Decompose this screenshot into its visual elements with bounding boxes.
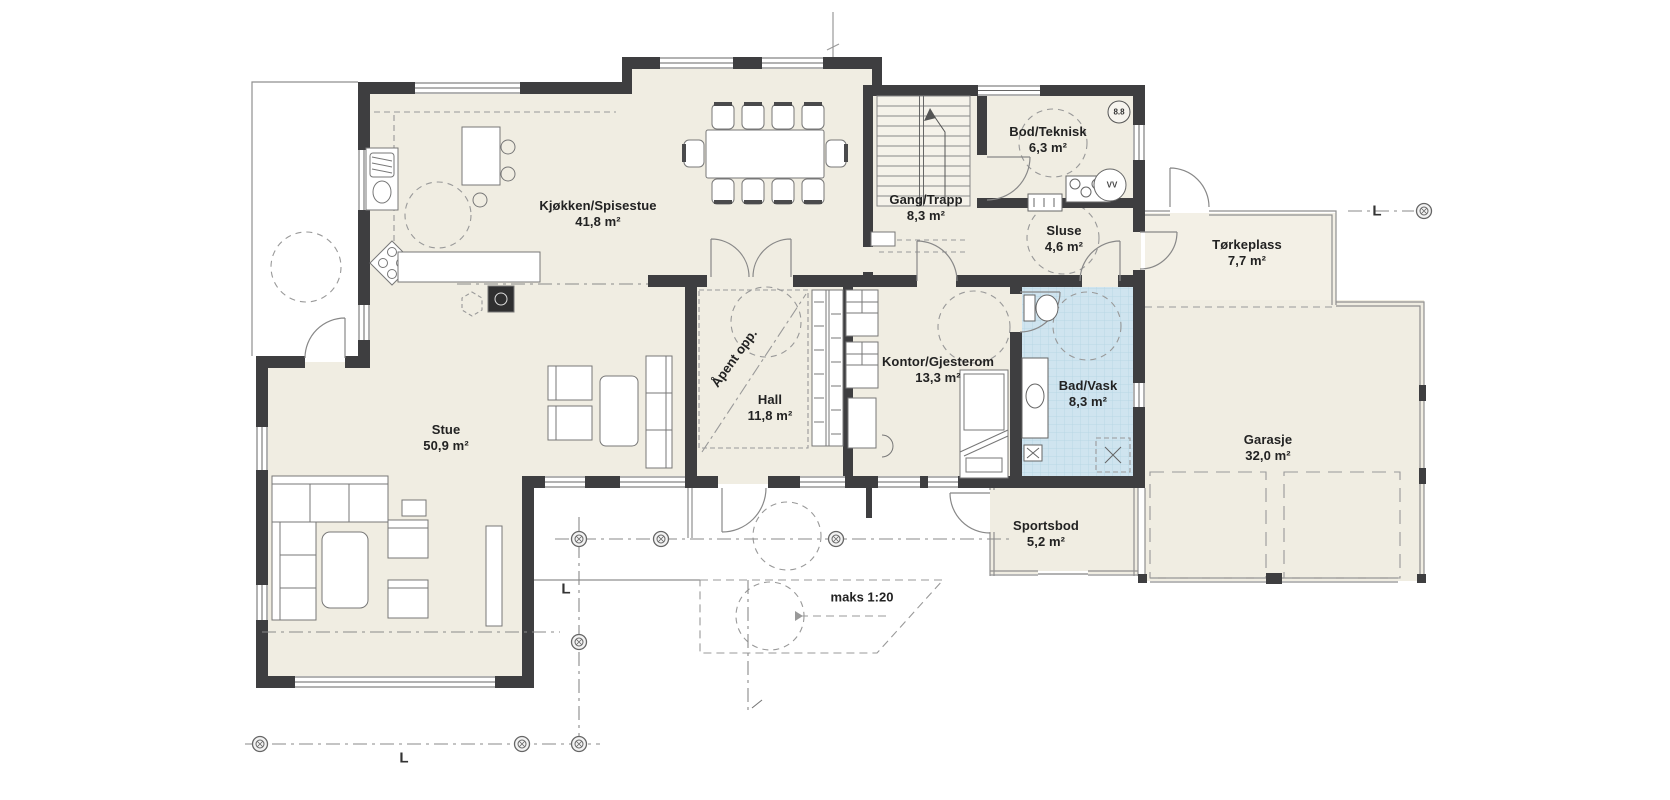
room-label-kontor: Kontor/Gjesterom13,3 m²: [882, 354, 994, 386]
sluse-cabinet: [1028, 194, 1062, 211]
section-letter-mid: L: [561, 581, 570, 598]
armchair: [388, 580, 428, 618]
toilet-bowl: [1036, 295, 1058, 321]
room-label-kjokken: Kjøkken/Spisestue41,8 m²: [539, 198, 656, 230]
desk: [848, 398, 876, 448]
floor-plan-page: Kjøkken/Spisestue41,8 m² Gang/Trapp8,3 m…: [0, 0, 1670, 800]
staircase: [877, 96, 970, 206]
coffee-table: [322, 532, 368, 608]
ramp-outline: [700, 580, 943, 653]
kitchen-counter: [398, 252, 540, 282]
wash-basin: [1026, 384, 1044, 408]
wood-stove: [488, 286, 514, 312]
water-heater-label: VV: [1107, 181, 1118, 190]
sportsbod-door: [950, 493, 990, 533]
kitchen-island: [462, 127, 500, 185]
terrace-door: [305, 318, 345, 358]
room-label-stue: Stue50,9 m²: [423, 422, 469, 454]
room-label-garasje: Garasje32,0 m²: [1244, 432, 1292, 464]
room-label-sluse: Sluse4,6 m²: [1045, 223, 1083, 255]
section-letter-bottom: L: [399, 750, 408, 767]
ramp-slope-label: maks 1:20: [831, 590, 894, 605]
side-table: [402, 500, 426, 516]
section-letter-right: L: [1372, 203, 1381, 220]
dining-table: [706, 130, 824, 178]
bed: [960, 370, 1008, 478]
torkeplass-door: [1170, 168, 1209, 207]
room-label-hall: Hall11,8 m²: [748, 392, 793, 424]
hall-wardrobe: [812, 290, 843, 446]
room-label-bod: Bod/Teknisk6,3 m²: [1009, 124, 1086, 156]
room-label-torkeplass: Tørkeplass7,7 m²: [1212, 237, 1282, 269]
floor-plan-drawing: [0, 0, 1670, 800]
armchair: [548, 366, 592, 400]
main-entrance-door: [722, 488, 766, 532]
tv-bench: [486, 526, 502, 626]
sofa: [272, 522, 316, 620]
sofa: [272, 476, 388, 522]
room-label-sportsbod: Sportsbod5,2 m²: [1013, 518, 1079, 550]
bench: [871, 232, 895, 246]
toilet-tank: [1024, 295, 1035, 321]
room-label-gang: Gang/Trapp8,3 m²: [889, 192, 962, 224]
armchair: [548, 406, 592, 440]
room-label-bad: Bad/Vask8,3 m²: [1059, 378, 1118, 410]
armchair: [388, 520, 428, 558]
detail-ref-label: 8.8: [1113, 108, 1124, 117]
sofa: [646, 356, 672, 468]
coffee-table: [600, 376, 638, 446]
